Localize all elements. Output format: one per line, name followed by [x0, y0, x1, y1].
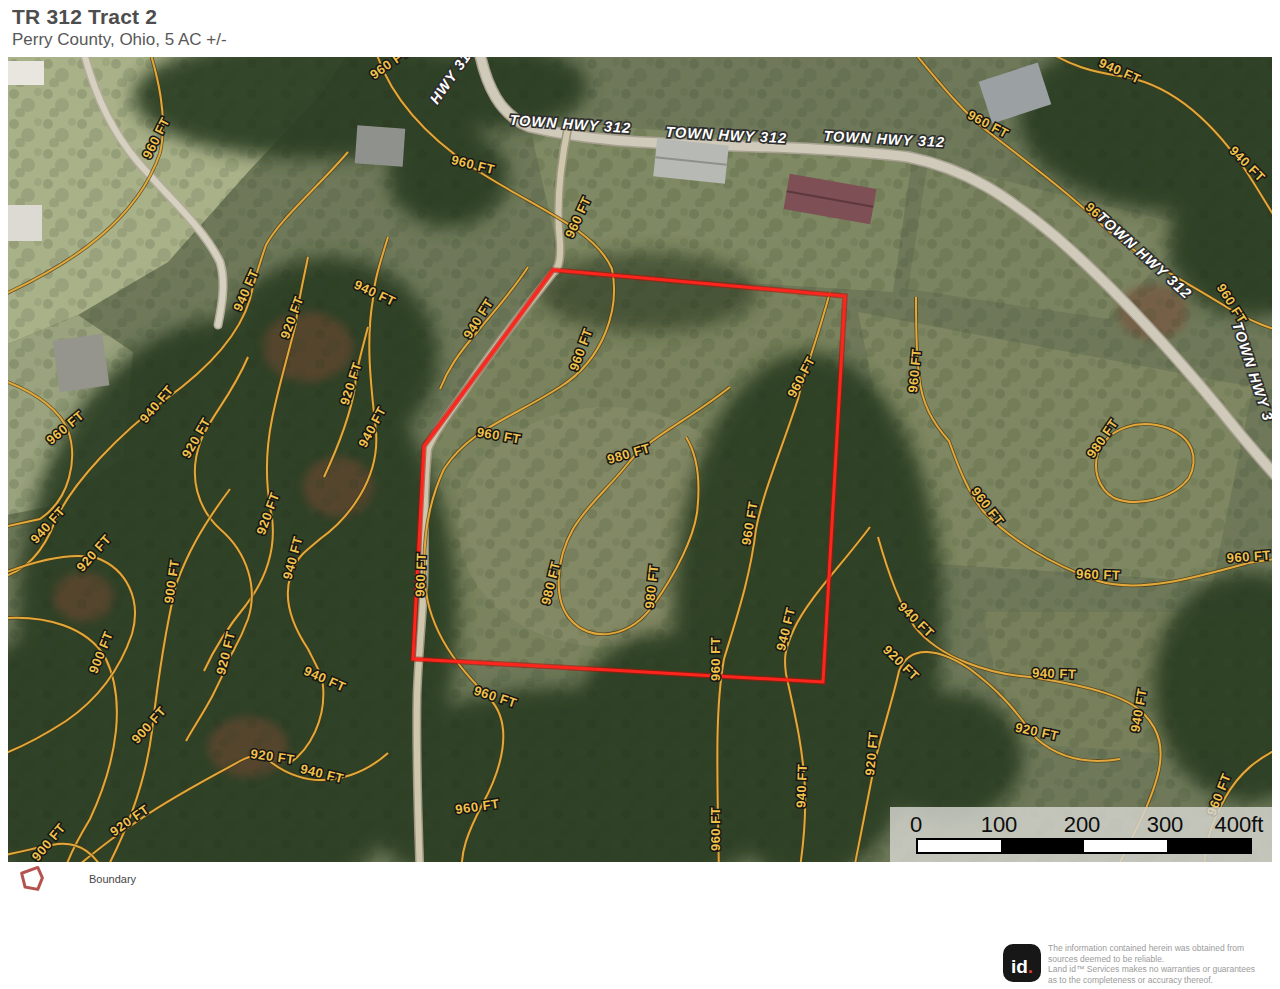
contour-elevation-label: 940 FT	[1032, 665, 1077, 682]
contour-elevation-label: 960 FT	[708, 637, 723, 681]
contour-elevation-label: 960 FT	[1226, 547, 1271, 565]
building	[8, 205, 42, 241]
contour-elevation-label: 960 FT	[708, 807, 723, 851]
logo-text: id	[1011, 952, 1028, 982]
contour-elevation-label: 960 FT	[412, 553, 429, 598]
disclaimer-line: as to the completeness or accuracy there…	[1048, 975, 1276, 986]
aerial-map-svg: 960 FT960 FT960 FT960 FT940 FT920 FT940 …	[8, 57, 1272, 862]
scale-tick-label: 200	[1064, 812, 1101, 838]
map-legend: Boundary	[17, 862, 136, 896]
scale-bar-segment	[1084, 840, 1167, 852]
contour-elevation-label: 940 FT	[793, 764, 810, 809]
scale-bar: 0100200300400ft	[890, 807, 1272, 862]
boundary-legend-icon	[17, 864, 47, 894]
map-header: TR 312 Tract 2 Perry County, Ohio, 5 AC …	[12, 4, 227, 50]
page-title: TR 312 Tract 2	[12, 4, 227, 29]
scale-tick-label: 0	[910, 812, 922, 838]
contour-elevation-label: 960 FT	[1076, 566, 1121, 583]
building	[355, 125, 406, 166]
disclaimer-text: The information contained herein was obt…	[1048, 943, 1276, 985]
scale-bar-segment	[1001, 840, 1084, 852]
scale-tick-label: 100	[981, 812, 1018, 838]
page: TR 312 Tract 2 Perry County, Ohio, 5 AC …	[0, 0, 1280, 989]
scale-tick-label: 300	[1147, 812, 1184, 838]
land-id-logo: id.	[1003, 944, 1041, 982]
scale-bar-segment	[1167, 840, 1250, 852]
scale-bar-segments	[916, 838, 1252, 854]
logo-dot: .	[1028, 952, 1033, 982]
scale-tick-label: 400ft	[1215, 812, 1264, 838]
building-barn	[653, 138, 729, 183]
disclaimer-line: The information contained herein was obt…	[1048, 943, 1276, 954]
scale-bar-segment	[918, 840, 1001, 852]
legend-item-label: Boundary	[89, 873, 136, 885]
disclaimer-line: sources deemed to be reliable.	[1048, 954, 1276, 965]
disclaimer-line: Land id™ Services makes no warranties or…	[1048, 964, 1276, 975]
map-canvas[interactable]: 960 FT960 FT960 FT960 FT940 FT920 FT940 …	[8, 57, 1272, 862]
building	[53, 334, 110, 392]
building	[8, 61, 44, 85]
page-subtitle: Perry County, Ohio, 5 AC +/-	[12, 29, 227, 50]
